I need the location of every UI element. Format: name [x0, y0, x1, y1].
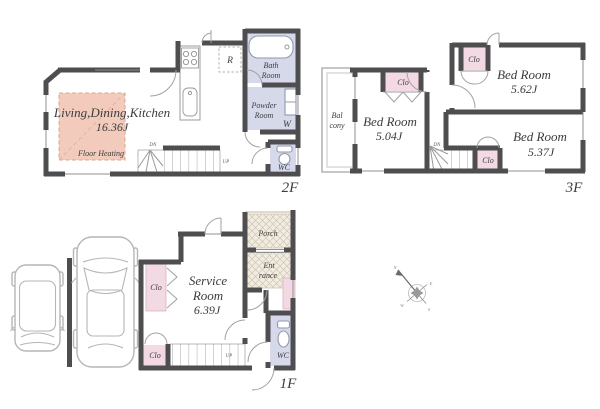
service-room-label-1: Service [189, 273, 227, 288]
stairs-down-label-2f: DN [148, 143, 157, 148]
door-arc [252, 148, 268, 164]
wc-label-1f: WC [277, 351, 290, 360]
closet-door-arcs [145, 333, 167, 344]
front-door [256, 250, 284, 253]
floor-plan-page: Living,Dining,Kitchen 16.36J Floor Heati… [0, 0, 600, 409]
sink-icon [183, 88, 197, 116]
parking-divider-wall [67, 258, 72, 367]
toilet-bowl-icon-1f [278, 331, 289, 347]
car-small [11, 265, 65, 351]
closet-bifold-doors [167, 268, 177, 308]
balcony-label-2: cony [329, 121, 345, 130]
compass-north-label: N [392, 265, 397, 270]
compass-south-label: S [428, 307, 431, 312]
closet-label: Clo [149, 351, 161, 360]
washer-label: W [283, 120, 292, 130]
door-arc [150, 70, 176, 96]
floor-plan-drawing: Living,Dining,Kitchen 16.36J Floor Heati… [0, 0, 600, 409]
floor-1f: Service Room 6.39J Porch Ent rance Clo C… [11, 210, 298, 392]
floor-3f: Bal cony Clo Clo Clo Bed Room 5.04J Bed … [322, 33, 585, 196]
door-arc [248, 342, 268, 362]
bath-room-label-1: Bath [263, 61, 278, 70]
compass-west-label: W [400, 303, 405, 308]
stairs-2f-treads [163, 150, 220, 172]
floor-heating-label: Floor Heating [77, 149, 124, 158]
compass-east-label: E [429, 281, 433, 286]
service-room-label-2: Room [192, 288, 223, 303]
floor-2f: Living,Dining,Kitchen 16.36J Floor Heati… [44, 29, 300, 196]
closet-label: Clo [397, 78, 409, 87]
bedroom2-label: Bed Room [497, 67, 551, 82]
balcony-label-1: Bal [331, 111, 343, 120]
car-body [15, 265, 60, 351]
floor-label-1f: 1F [280, 376, 298, 392]
floor-label-3f: 3F [565, 180, 584, 196]
bedroom2-size: 5.62J [511, 82, 538, 96]
compass-star [411, 287, 424, 300]
bedroom1-size: 5.04J [376, 129, 403, 143]
closet-door-arcs [461, 71, 488, 84]
door-arc [452, 85, 475, 108]
car-large [72, 237, 140, 367]
door-arc [205, 218, 221, 234]
stove-icon [182, 48, 199, 68]
powder-room-label-2: Room [254, 111, 274, 120]
door-arc [252, 368, 274, 390]
stairs-up-label-1f: UP [226, 354, 233, 359]
closet-label: Clo [468, 55, 480, 64]
bedroom3-label: Bed Room [513, 129, 567, 144]
closet-bifold-doors [385, 92, 421, 102]
floor-label-2f: 2F [282, 180, 300, 196]
door-arc [245, 132, 260, 147]
closet-label: Clo [482, 156, 494, 165]
toilet-tank-icon-2f [277, 146, 292, 152]
wc-label-2f: WC [278, 163, 291, 172]
refrigerator-label: R [226, 56, 233, 66]
closet-label: Clo [150, 283, 162, 292]
porch-label: Porch [257, 229, 277, 238]
service-room-size: 6.39J [194, 303, 221, 317]
compass-rose: N E S W [392, 265, 432, 312]
bedroom1-label: Bed Room [363, 114, 417, 129]
entrance-label-2: rance [259, 271, 278, 280]
door-arc [225, 320, 245, 340]
car-body [77, 237, 134, 367]
bath-room-label-2: Room [261, 71, 281, 80]
bedroom3-size: 5.37J [528, 145, 555, 159]
powder-room-label-1: Powder [251, 101, 278, 110]
toilet-tank-icon-1f [278, 321, 290, 328]
kitchen-counter [180, 46, 200, 120]
ldk-label: Living,Dining,Kitchen [53, 105, 170, 120]
stairs-up-label-2f: UP [223, 160, 230, 165]
bathtub-icon [249, 36, 293, 58]
door-arc [487, 33, 499, 45]
stairs-down-label-3f: DN [432, 143, 441, 148]
stairs-1f-treads [170, 344, 245, 366]
entrance-label-1: Ent [262, 261, 275, 270]
ldk-size-label: 16.36J [96, 120, 129, 134]
